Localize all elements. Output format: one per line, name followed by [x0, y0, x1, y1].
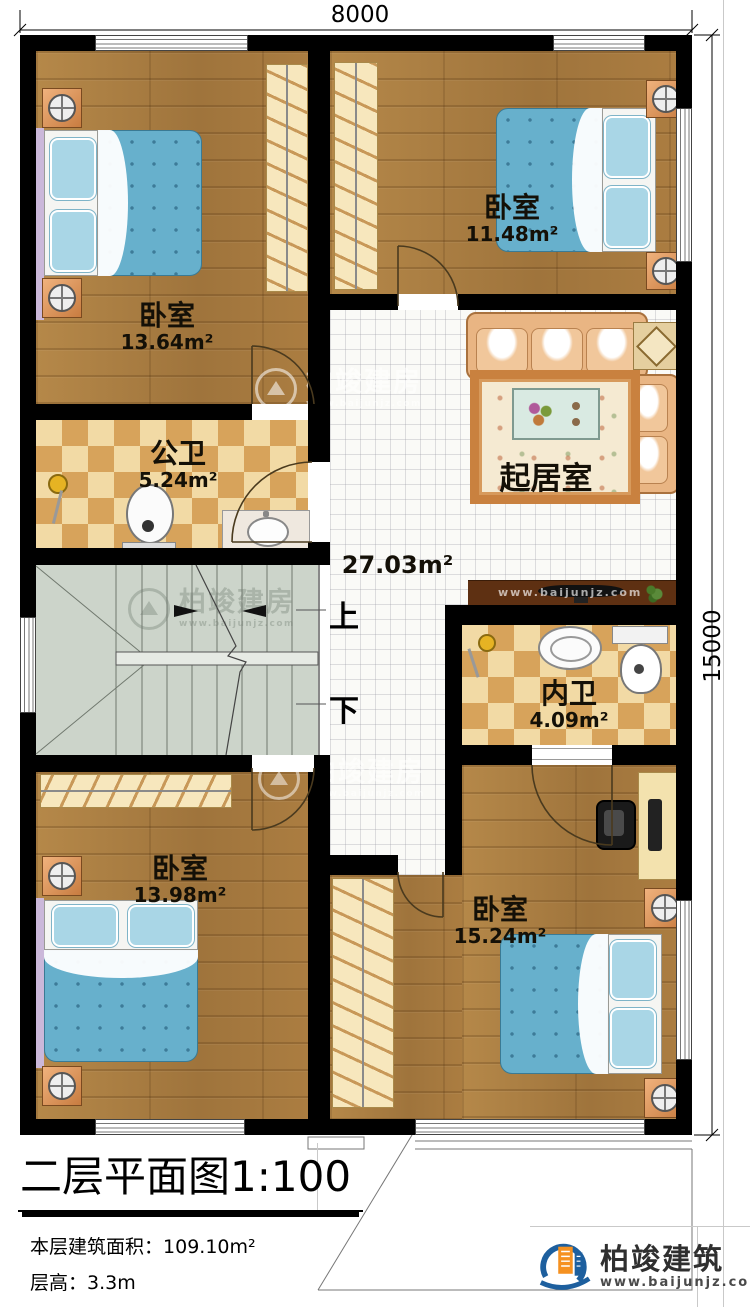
room-name: 卧室: [105, 853, 255, 884]
room-name: 起居室: [466, 462, 626, 497]
wall-segment: [20, 548, 330, 565]
wall-segment: [612, 745, 692, 765]
stairs-down-label: 下: [326, 686, 362, 730]
pillow: [610, 1008, 656, 1068]
sofa-cushion: [531, 328, 583, 374]
wall-segment: [248, 35, 553, 51]
wall-segment: [314, 755, 330, 772]
floor-height-label: 层高：: [30, 1272, 87, 1294]
desk-chair: [596, 800, 636, 850]
stairs-edge-line: [318, 565, 320, 755]
room-label-living: 起居室: [466, 462, 626, 497]
pillow: [128, 905, 194, 947]
coffee-table: [512, 388, 600, 440]
pillow: [50, 210, 96, 272]
plan-title-text: 二层平面图: [20, 1152, 230, 1201]
room-label-private-bath: 内卫 4.09m²: [494, 678, 644, 732]
wall-segment: [676, 1060, 692, 1135]
toilet: [122, 484, 174, 558]
stairs-floor: [36, 565, 318, 755]
wall-segment: [20, 35, 36, 617]
lamp-icon: [651, 894, 679, 922]
stairs-up-label: 上: [326, 592, 362, 636]
wall-segment: [676, 262, 692, 900]
window: [95, 35, 248, 51]
wall-segment: [445, 745, 532, 765]
faucet-icon: [263, 511, 269, 517]
wall-segment: [20, 755, 252, 772]
brand-logo-icon: [536, 1238, 594, 1296]
pillow: [610, 940, 656, 1000]
plan-scale: 1:100: [230, 1152, 351, 1201]
toilet-drain: [634, 664, 644, 674]
room-label-bedroom-tl: 卧室 13.64m²: [92, 300, 242, 354]
window: [20, 617, 36, 713]
bed-bottom-left: [44, 900, 198, 1062]
lamp-icon: [48, 862, 76, 890]
desk: [638, 772, 678, 880]
window: [415, 1119, 645, 1135]
room-name: 公卫: [103, 438, 253, 469]
wall-segment: [445, 605, 692, 625]
floor-drain-icon: [478, 634, 496, 652]
chair-seat: [604, 810, 624, 836]
room-name: 卧室: [415, 894, 585, 925]
door-threshold: [532, 748, 612, 760]
bed-top-left: [44, 130, 202, 276]
toilet-tank: [612, 626, 668, 644]
bed-bottom-right: [500, 934, 662, 1074]
floor-height-value: 3.3m: [87, 1272, 136, 1294]
nightstand: [42, 278, 82, 318]
sheet-frame-line: [530, 1226, 750, 1227]
wall-segment: [308, 35, 330, 462]
room-area: 4.09m²: [494, 709, 644, 731]
wall-segment: [308, 855, 398, 875]
pillow: [604, 186, 650, 248]
toilet-bowl: [126, 484, 174, 544]
floor-plan-sheet: 柏竣建房 www.baijunjz.com 柏竣建房 www.baijunjz.…: [0, 0, 750, 1307]
floor-area-label: 本层建筑面积：: [30, 1236, 163, 1258]
brand-logo: 柏竣建筑 www.baijunjz.com: [536, 1238, 750, 1296]
room-area: 27.03m²: [330, 552, 465, 579]
washbasin: [538, 626, 602, 670]
brand-name: 柏竣建筑: [600, 1244, 750, 1276]
dimension-top: 8000: [320, 2, 400, 28]
living-area-label: 27.03m²: [330, 552, 465, 579]
pillow: [50, 138, 96, 200]
window: [676, 108, 692, 262]
floor-area-value: 109.10m²: [163, 1236, 256, 1258]
pillow: [52, 905, 118, 947]
window: [95, 1119, 245, 1135]
floor-drain-icon: [48, 474, 68, 494]
plant-icon: [644, 583, 664, 603]
lamp-icon: [48, 94, 76, 122]
room-label-public-bath: 公卫 5.24m²: [103, 438, 253, 492]
room-area: 13.98m²: [105, 884, 255, 906]
wall-segment: [308, 772, 330, 1119]
plan-title: 二层平面图1:100: [18, 1143, 363, 1212]
watermark-site: www.baijunjz.com: [498, 586, 642, 599]
floor-height-line: 层高：3.3m: [30, 1268, 136, 1295]
room-area: 15.24m²: [415, 925, 585, 947]
flower-decor: [526, 400, 554, 428]
bed-sheet-fold: [578, 934, 608, 1074]
toilet-drain: [142, 520, 154, 532]
sofa-cushion: [476, 328, 528, 374]
room-name: 卧室: [92, 300, 242, 331]
lamp-icon: [651, 1084, 679, 1112]
wall-segment: [330, 294, 398, 310]
wardrobe: [334, 62, 378, 290]
cup-decor: [572, 402, 580, 410]
side-table: [633, 322, 677, 370]
window: [676, 900, 692, 1060]
wall-segment: [20, 404, 252, 420]
wall-segment: [458, 294, 692, 310]
room-label-bedroom-tr: 卧室 11.48m²: [437, 192, 587, 246]
sofa-cushion: [586, 328, 638, 374]
wardrobe: [332, 878, 394, 1108]
room-label-bedroom-bl: 卧室 13.98m²: [105, 853, 255, 907]
brand-text-block: 柏竣建筑 www.baijunjz.com: [600, 1244, 750, 1291]
cup-decor: [572, 418, 580, 426]
wardrobe: [266, 64, 308, 292]
washbasin: [247, 517, 289, 547]
monitor-icon: [648, 799, 662, 851]
nightstand: [42, 856, 82, 896]
lamp-icon: [48, 284, 76, 312]
side-table-lamp: [636, 326, 677, 367]
floor-area-line: 本层建筑面积：109.10m²: [30, 1232, 256, 1259]
wall-segment: [314, 404, 330, 420]
room-area: 11.48m²: [437, 223, 587, 245]
window: [553, 35, 645, 51]
washbasin-counter: [222, 510, 310, 550]
room-area: 13.64m²: [92, 331, 242, 353]
room-name: 内卫: [494, 678, 644, 709]
room-label-bedroom-br: 卧室 15.24m²: [415, 894, 585, 948]
brand-website: www.baijunjz.com: [600, 1275, 750, 1290]
curtain-strip: [36, 898, 44, 1068]
room-name: 卧室: [437, 192, 587, 223]
nightstand: [42, 88, 82, 128]
nightstand: [42, 1066, 82, 1106]
pillow: [604, 116, 650, 178]
sheet-border-line: [723, 0, 724, 1307]
room-area: 5.24m²: [103, 469, 253, 491]
washbasin-bowl: [550, 636, 592, 662]
wall-segment: [20, 713, 36, 1135]
wall-segment: [676, 35, 692, 108]
lamp-icon: [48, 1072, 76, 1100]
wardrobe: [40, 774, 232, 808]
wall-segment: [245, 1119, 415, 1135]
